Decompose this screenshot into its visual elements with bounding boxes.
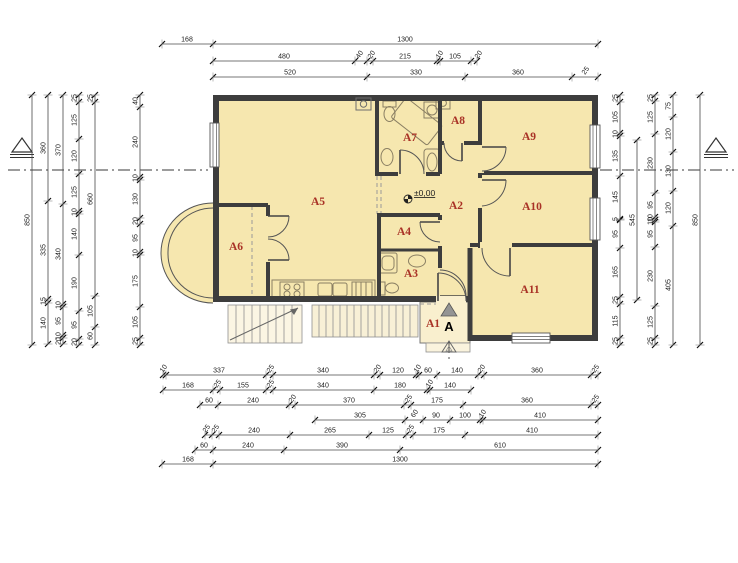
dimension-label: 125 <box>648 111 655 123</box>
dimension-label: 190 <box>72 277 79 289</box>
dimension-label: 95 <box>133 234 140 242</box>
dimension-label: 5 <box>613 217 620 221</box>
dimension-label: 168 <box>182 383 194 390</box>
room-label-a6: A6 <box>229 241 243 253</box>
room-label-a10: A10 <box>522 201 542 213</box>
room-label-a1: A1 <box>426 318 440 330</box>
dimension-label: 95 <box>56 317 63 325</box>
dimension-label: 25 <box>211 424 221 434</box>
dimension-label: 125 <box>72 186 79 198</box>
dimension-label: 25 <box>648 337 655 345</box>
dimension-label: 155 <box>237 383 249 390</box>
dimension-chain: 850 <box>693 92 705 348</box>
dimension-label: 135 <box>613 150 620 162</box>
room-label-a7: A7 <box>403 132 417 144</box>
dimension-label: 95 <box>648 230 655 238</box>
entry-steps <box>312 305 418 337</box>
dimension-label: 330 <box>410 70 422 77</box>
dimension-label: 370 <box>343 398 355 405</box>
dimension-chain: 37034010951020 <box>56 92 68 347</box>
dimension-label: 175 <box>433 428 445 435</box>
dimension-chain: 25125120125101401909520 <box>72 92 84 348</box>
dimension-chain: 545 <box>630 137 642 303</box>
dimension-label: 850 <box>693 214 700 226</box>
dimension-label: 1300 <box>397 37 413 44</box>
section-arrow-left <box>10 138 34 158</box>
dimension-chain: 2566010560 <box>88 92 100 348</box>
dimension-label: 340 <box>317 368 329 375</box>
dimension-label: 105 <box>449 54 461 61</box>
dimension-label: 10 <box>56 301 63 309</box>
dimension-label: 410 <box>534 413 546 420</box>
section-letter: A <box>444 319 454 334</box>
dimension-label: 140 <box>72 228 79 240</box>
dimension-label: 105 <box>133 316 140 328</box>
dimension-label: 95 <box>613 230 620 238</box>
dimension-label: 180 <box>394 383 406 390</box>
dimension-label: 520 <box>284 70 296 77</box>
dimension-label: 130 <box>666 165 673 177</box>
dimension-label: 60 <box>88 332 95 340</box>
dimension-label: 480 <box>278 54 290 61</box>
dimension-label: 120 <box>72 150 79 162</box>
level-marker: ±0,00 <box>414 188 435 198</box>
dimension-label: 125 <box>382 428 394 435</box>
dimension-label: 850 <box>25 214 32 226</box>
dimension-label: 95 <box>72 321 79 329</box>
dimension-label: 25 <box>88 94 95 102</box>
dimension-label: 25 <box>648 94 655 102</box>
dimension-label: 10 <box>133 249 140 257</box>
dimension-label: 25 <box>613 296 620 304</box>
dimension-label: 40 <box>133 97 140 105</box>
dimension-chain: 402401013020951017510525 <box>133 92 145 348</box>
dimension-label: 610 <box>494 443 506 450</box>
dimension-label: 360 <box>41 142 48 154</box>
dimension-chain: 60240390610 <box>192 443 601 455</box>
dimension-label: 120 <box>666 202 673 214</box>
room-label-a4: A4 <box>397 226 411 238</box>
dimension-label: 240 <box>133 136 140 148</box>
dimension-label: 1300 <box>392 457 408 464</box>
dimension-label: 60 <box>424 368 432 375</box>
dimension-label: 95 <box>648 201 655 209</box>
dimension-label: 10 <box>72 208 79 216</box>
dimension-label: 15 <box>41 297 48 305</box>
dimension-label: 20 <box>72 338 79 346</box>
dimension-label: 20 <box>474 50 484 60</box>
dimension-label: 105 <box>88 305 95 317</box>
dimension-label: 20 <box>56 337 63 345</box>
dimension-label: 10 <box>425 379 435 389</box>
dimension-label: 10 <box>435 50 445 60</box>
dimension-label: 120 <box>666 128 673 140</box>
dimension-label: 165 <box>613 266 620 278</box>
dimension-label: 660 <box>88 193 95 205</box>
dimension-label: 10 <box>478 409 488 419</box>
section-arrow-right <box>704 138 728 158</box>
room-label-a3: A3 <box>404 268 418 280</box>
dimension-chain: 305609010010410 <box>312 409 601 425</box>
dimension-label: 360 <box>512 70 524 77</box>
dimension-label: 25 <box>613 337 620 345</box>
dimension-chain: 1681300 <box>159 457 601 469</box>
dimension-label: 75 <box>666 102 673 110</box>
dimension-chain: 168251552534018010140 <box>160 379 474 395</box>
dimension-label: 60 <box>205 398 213 405</box>
dimension-label: 340 <box>317 383 329 390</box>
room-label-a8: A8 <box>451 115 465 127</box>
dimension-label: 390 <box>336 443 348 450</box>
dimension-label: 340 <box>56 248 63 260</box>
dimension-chain: 52033036025 <box>210 66 601 82</box>
room-label-a9: A9 <box>522 131 536 143</box>
dimension-label: 410 <box>526 428 538 435</box>
dimension-label: 545 <box>630 214 637 226</box>
dimension-label: 10 <box>133 174 140 182</box>
dimension-label: 120 <box>392 368 404 375</box>
dimension-label: 168 <box>181 37 193 44</box>
dimension-chain: 1681300 <box>159 37 601 49</box>
dimension-label: 140 <box>451 368 463 375</box>
dimension-label: 105 <box>613 111 620 123</box>
floor-plan: A ±0,00 16813004804020215101052052033036… <box>0 0 738 563</box>
room-label-a2: A2 <box>449 200 463 212</box>
dimension-label: 25 <box>133 337 140 345</box>
dimension-label: 265 <box>324 428 336 435</box>
dimension-label: 25 <box>72 94 79 102</box>
dimension-label: 230 <box>648 270 655 282</box>
dimension-chain: 60240203702517536025 <box>197 394 601 410</box>
dimension-chain: 850 <box>25 92 37 348</box>
dimension-label: 360 <box>521 398 533 405</box>
dimension-label: 60 <box>410 409 420 419</box>
dimension-label: 215 <box>399 54 411 61</box>
dimension-label: 10 <box>613 130 620 138</box>
dimension-label: 25 <box>581 66 591 76</box>
dimension-label: 360 <box>531 368 543 375</box>
dimension-label: 240 <box>242 443 254 450</box>
dimension-chain: 75120130120405 <box>666 92 678 348</box>
floor-plan-svg: A ±0,00 16813004804020215101052052033036… <box>0 0 738 563</box>
dimension-label: 140 <box>41 317 48 329</box>
dimension-label: 140 <box>444 383 456 390</box>
dimension-label: 337 <box>213 368 225 375</box>
dimension-label: 240 <box>248 428 260 435</box>
dimension-label: 40 <box>355 50 365 60</box>
dimension-label: 370 <box>56 144 63 156</box>
dimension-label: 335 <box>41 244 48 256</box>
dimension-label: 168 <box>182 457 194 464</box>
dimension-label: 240 <box>247 398 259 405</box>
dimension-label: 10 <box>648 217 655 225</box>
dimension-chain: 10337253402012010601402036025 <box>159 364 601 380</box>
dimension-chain: 25105101351455951652511525 <box>613 92 625 348</box>
dimension-label: 230 <box>648 157 655 169</box>
dimension-chain: 36033515140 <box>41 92 53 347</box>
dimension-label: 125 <box>72 114 79 126</box>
dimension-label: 20 <box>133 217 140 225</box>
dimension-label: 175 <box>133 275 140 287</box>
dimension-label: 60 <box>200 443 208 450</box>
dimension-chain: 251252309510109523012525 <box>648 92 660 348</box>
room-label-a5: A5 <box>311 196 325 208</box>
dimension-chain: 252524026512525175410 <box>202 424 601 440</box>
dimension-label: 100 <box>459 413 471 420</box>
dimension-label: 25 <box>613 94 620 102</box>
dimension-label: 130 <box>133 193 140 205</box>
dimension-label: 125 <box>648 316 655 328</box>
dimension-label: 305 <box>354 413 366 420</box>
dimension-label: 90 <box>432 413 440 420</box>
room-label-a11: A11 <box>520 284 539 296</box>
dimension-chain: 48040202151010520 <box>210 50 484 66</box>
dimension-label: 405 <box>666 279 673 291</box>
dimension-label: 145 <box>613 191 620 203</box>
exterior-stairs <box>228 305 302 343</box>
dimension-label: 115 <box>613 315 620 326</box>
dimension-label: 175 <box>431 398 443 405</box>
